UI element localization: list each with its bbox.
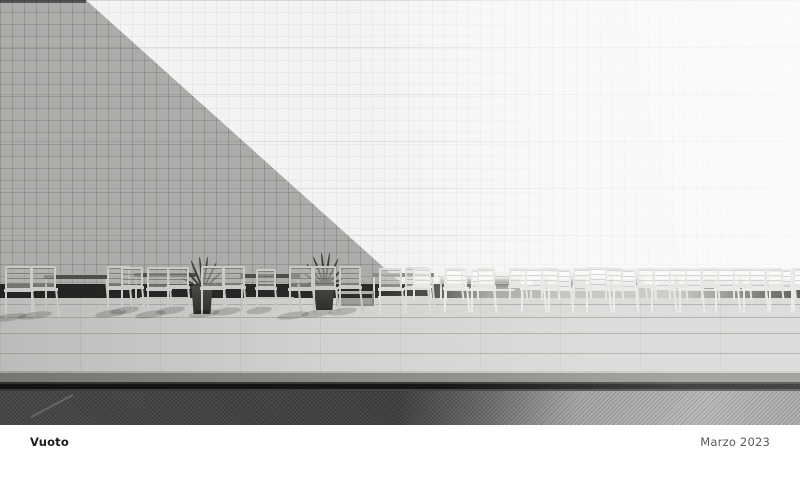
cafe-chair	[255, 269, 277, 311]
cafe-chair	[222, 266, 246, 312]
cafe-chair	[572, 268, 592, 300]
cafe-chair	[338, 266, 362, 312]
cafe-chair	[636, 268, 656, 300]
cafe-chair	[668, 268, 688, 300]
page: Vuoto Marzo 2023	[0, 0, 800, 496]
cafe-chair	[120, 267, 144, 311]
cafe-chair	[540, 268, 560, 300]
cafe-chair	[288, 266, 315, 316]
cafe-chair	[378, 268, 404, 314]
cafe-chair	[700, 268, 720, 300]
cafe-chair	[476, 268, 496, 300]
cafe-chair	[764, 268, 784, 300]
cafe-chair	[792, 268, 800, 300]
caption-bar: Vuoto Marzo 2023	[0, 425, 800, 449]
cafe-chair	[604, 268, 624, 300]
cafe-chair	[166, 267, 190, 311]
cafe-chair	[444, 268, 464, 300]
photo-date: Marzo 2023	[700, 435, 770, 449]
furniture-layer	[0, 0, 800, 425]
cafe-chair	[30, 266, 58, 316]
cafe-chair	[732, 268, 752, 300]
photo-title: Vuoto	[30, 435, 69, 449]
cafe-chair	[508, 268, 528, 300]
cafe-chair	[312, 266, 338, 314]
terrace-photo	[0, 0, 800, 425]
cafe-chair	[412, 268, 432, 300]
